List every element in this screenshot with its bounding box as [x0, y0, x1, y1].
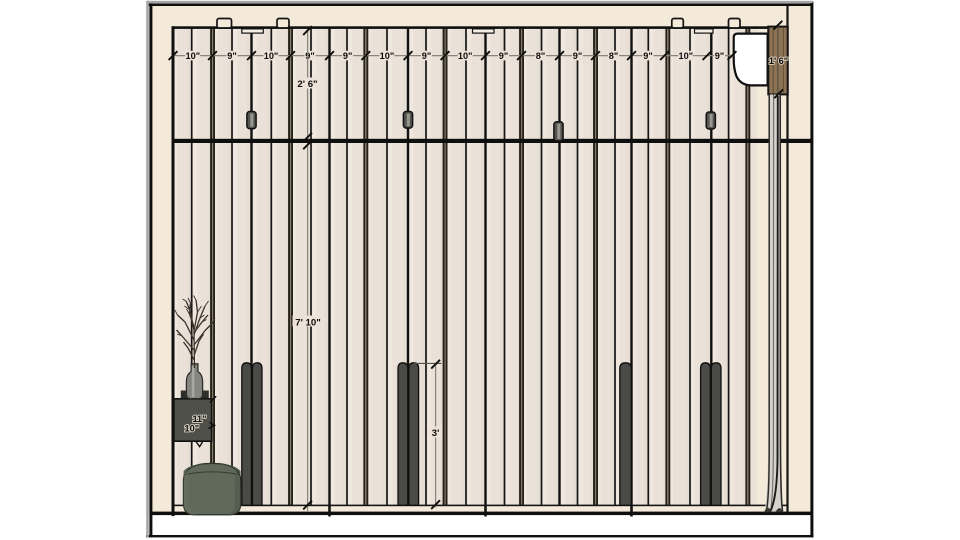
svg-text:10": 10" — [185, 423, 200, 433]
svg-text:9": 9" — [305, 51, 314, 61]
svg-text:9": 9" — [422, 51, 431, 61]
svg-text:9": 9" — [715, 51, 724, 61]
svg-text:10": 10" — [679, 51, 694, 61]
svg-text:9": 9" — [643, 51, 652, 61]
svg-text:10": 10" — [458, 51, 473, 61]
svg-text:9": 9" — [499, 51, 508, 61]
svg-text:8": 8" — [609, 51, 618, 61]
svg-text:1' 6": 1' 6" — [769, 56, 788, 66]
svg-text:10": 10" — [380, 51, 395, 61]
svg-text:10": 10" — [264, 51, 279, 61]
svg-text:7' 10": 7' 10" — [295, 317, 321, 328]
svg-text:10": 10" — [186, 51, 201, 61]
svg-text:9": 9" — [227, 51, 236, 61]
svg-text:9": 9" — [343, 51, 352, 61]
svg-text:3': 3' — [432, 428, 440, 439]
svg-text:8": 8" — [536, 51, 545, 61]
svg-text:9": 9" — [573, 51, 582, 61]
svg-text:2' 6": 2' 6" — [297, 79, 317, 90]
